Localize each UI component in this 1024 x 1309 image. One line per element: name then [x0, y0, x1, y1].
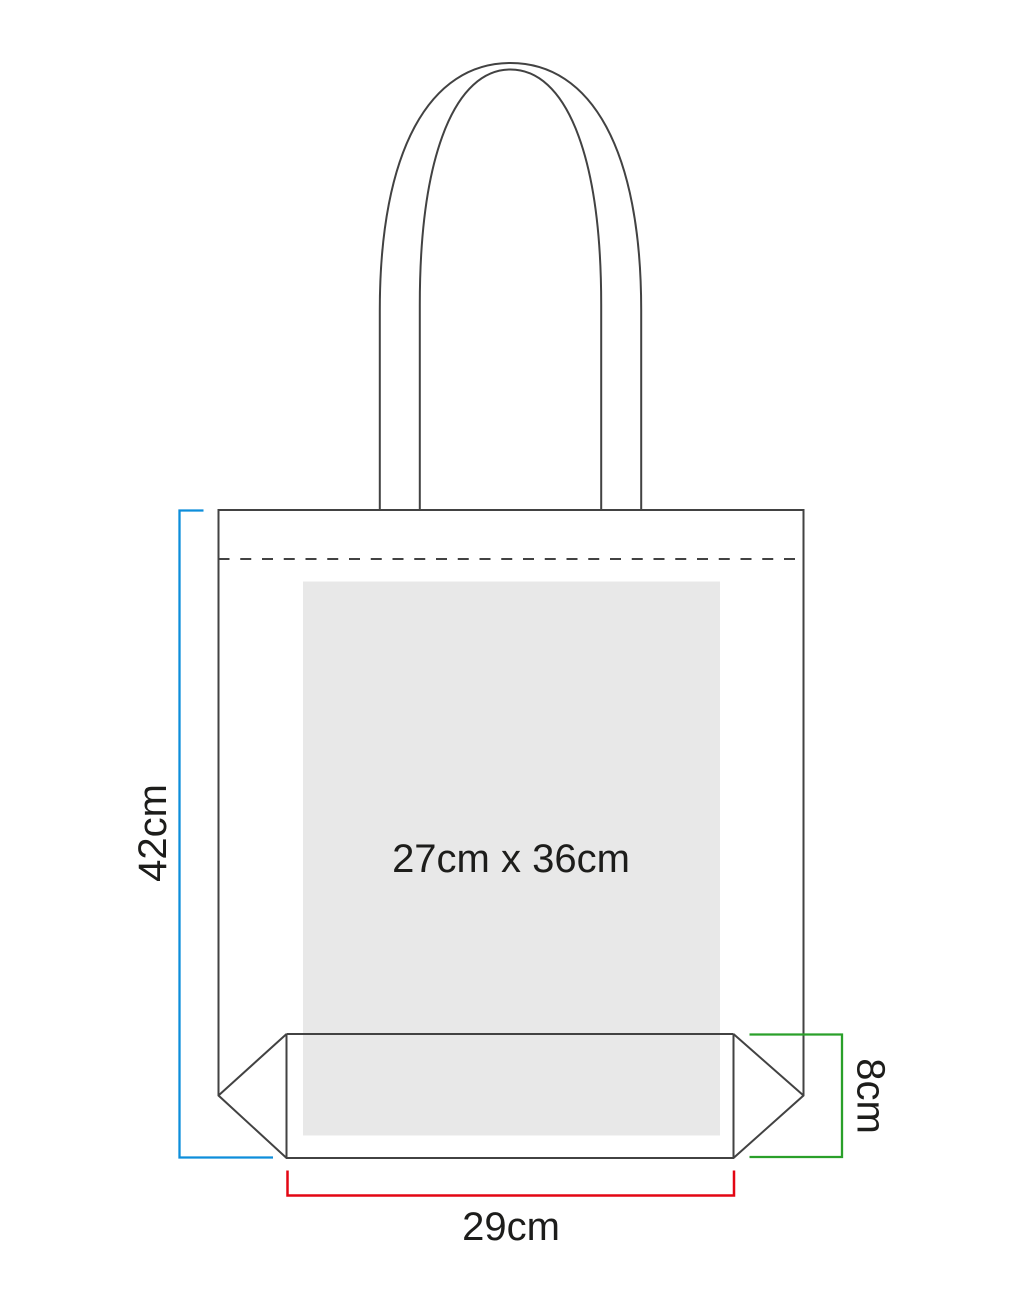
svg-text:29cm: 29cm [462, 1205, 560, 1249]
svg-text:8cm: 8cm [848, 1058, 892, 1134]
svg-text:27cm x 36cm: 27cm x 36cm [392, 837, 630, 881]
svg-text:42cm: 42cm [131, 784, 175, 882]
